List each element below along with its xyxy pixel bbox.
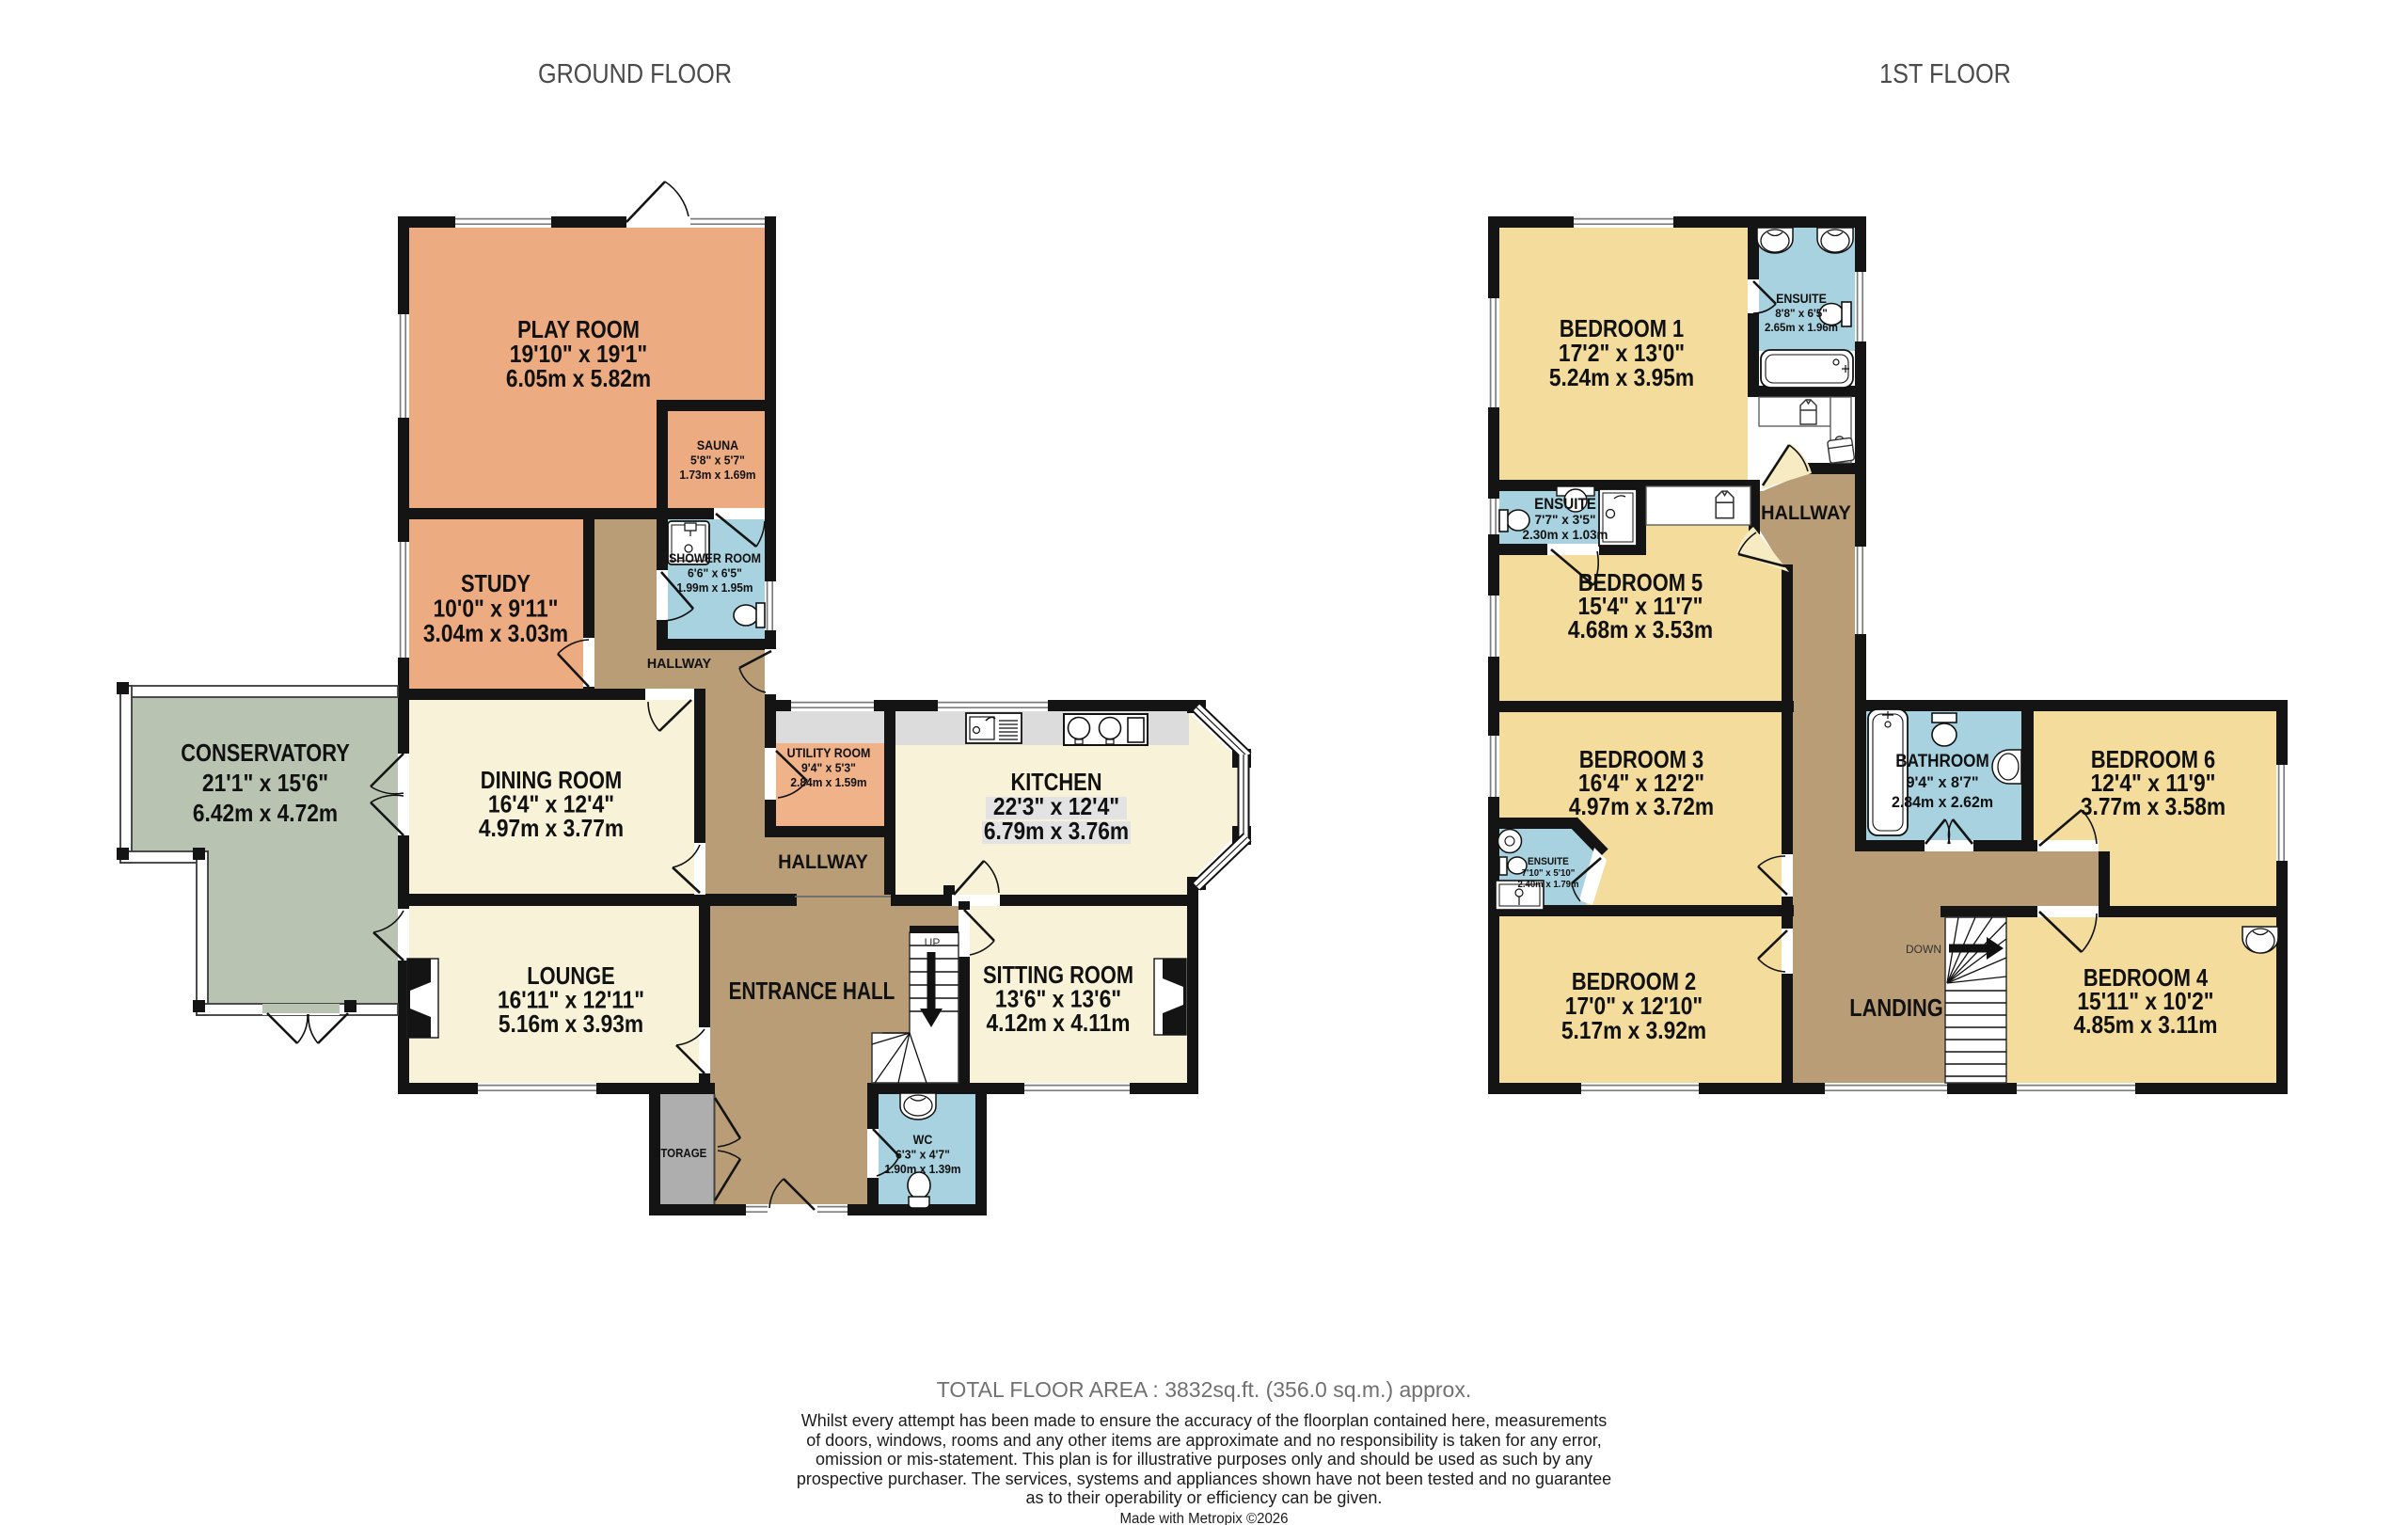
svg-text:4.12m x 4.11m: 4.12m x 4.11m: [987, 1009, 1131, 1037]
svg-text:4.97m x 3.77m: 4.97m x 3.77m: [479, 814, 624, 842]
svg-text:2.84m x 2.62m: 2.84m x 2.62m: [1892, 793, 1993, 811]
svg-text:TOTAL FLOOR AREA : 3832sq.ft.: TOTAL FLOOR AREA : 3832sq.ft. (356.0 sq.…: [937, 1377, 1471, 1402]
svg-text:STORAGE: STORAGE: [654, 1147, 707, 1160]
svg-text:3.04m x 3.03m: 3.04m x 3.03m: [423, 619, 568, 647]
svg-text:1.90m x 1.39m: 1.90m x 1.39m: [884, 1163, 960, 1176]
svg-text:6'3" x 4'7": 6'3" x 4'7": [895, 1149, 950, 1162]
svg-text:4.85m x 3.11m: 4.85m x 3.11m: [2074, 1010, 2218, 1039]
svg-text:5.16m x 3.93m: 5.16m x 3.93m: [499, 1009, 643, 1038]
svg-text:GROUND FLOOR: GROUND FLOOR: [538, 59, 732, 89]
svg-text:1.73m x 1.69m: 1.73m x 1.69m: [679, 469, 755, 482]
svg-text:9'4" x 5'3": 9'4" x 5'3": [801, 762, 856, 775]
svg-text:2.40m x 1.79m: 2.40m x 1.79m: [1518, 880, 1579, 890]
svg-text:HALLWAY: HALLWAY: [647, 656, 711, 672]
svg-text:10'0" x 9'11": 10'0" x 9'11": [433, 595, 558, 623]
svg-text:21'1" x 15'6": 21'1" x 15'6": [202, 769, 328, 797]
svg-text:8'8" x 6'5": 8'8" x 6'5": [1775, 307, 1828, 320]
svg-text:Whilst every attempt has been: Whilst every attempt has been made to en…: [801, 1411, 1607, 1430]
svg-text:6.42m x 4.72m: 6.42m x 4.72m: [193, 799, 338, 827]
svg-text:ENSUITE: ENSUITE: [1776, 292, 1827, 306]
svg-text:DOWN: DOWN: [1906, 943, 1941, 956]
svg-text:BATHROOM: BATHROOM: [1895, 752, 1988, 771]
svg-text:5'8" x 5'7": 5'8" x 5'7": [690, 454, 745, 468]
svg-text:SAUNA: SAUNA: [697, 438, 738, 453]
svg-text:5.17m x 3.92m: 5.17m x 3.92m: [1561, 1016, 1706, 1044]
svg-text:2.84m x 1.59m: 2.84m x 1.59m: [790, 776, 866, 789]
svg-text:4.97m x 3.72m: 4.97m x 3.72m: [1569, 792, 1714, 820]
svg-text:1.99m x 1.95m: 1.99m x 1.95m: [676, 581, 752, 595]
svg-text:WC: WC: [913, 1133, 933, 1147]
svg-text:2.65m x 1.96m: 2.65m x 1.96m: [1765, 321, 1838, 334]
svg-text:2.30m x 1.03m: 2.30m x 1.03m: [1523, 527, 1608, 542]
svg-text:1ST FLOOR: 1ST FLOOR: [1879, 59, 2011, 89]
svg-text:9'4" x 8'7": 9'4" x 8'7": [1906, 773, 1978, 791]
svg-text:Made with Metropix ©2026: Made with Metropix ©2026: [1119, 1511, 1288, 1525]
svg-text:ENSUITE: ENSUITE: [1534, 496, 1596, 513]
svg-text:4.68m x 3.53m: 4.68m x 3.53m: [1568, 615, 1713, 643]
svg-text:7'10" x 5'10": 7'10" x 5'10": [1522, 868, 1576, 879]
svg-text:6'6" x 6'5": 6'6" x 6'5": [688, 567, 742, 580]
svg-text:HALLWAY: HALLWAY: [778, 851, 868, 873]
svg-text:prospective purchaser. The ser: prospective purchaser. The services, sys…: [797, 1469, 1611, 1488]
svg-text:ENSUITE: ENSUITE: [1528, 856, 1569, 867]
svg-text:CONSERVATORY: CONSERVATORY: [181, 739, 350, 767]
svg-text:UP: UP: [925, 936, 941, 949]
svg-text:6.05m x 5.82m: 6.05m x 5.82m: [506, 364, 651, 392]
svg-text:LANDING: LANDING: [1849, 993, 1943, 1022]
svg-text:UTILITY ROOM: UTILITY ROOM: [787, 746, 871, 760]
svg-text:5.24m x 3.95m: 5.24m x 3.95m: [1549, 363, 1694, 391]
svg-text:STUDY: STUDY: [461, 569, 531, 597]
svg-text:ENTRANCE HALL: ENTRANCE HALL: [729, 977, 895, 1005]
svg-text:omission or mis-statement. Thi: omission or mis-statement. This plan is …: [816, 1450, 1592, 1469]
svg-text:SHOWER ROOM: SHOWER ROOM: [669, 551, 761, 565]
svg-text:of doors, windows, rooms and a: of doors, windows, rooms and any other i…: [806, 1431, 1601, 1450]
svg-text:as to their operability or eff: as to their operability or efficiency ca…: [1026, 1488, 1383, 1507]
svg-text:HALLWAY: HALLWAY: [1761, 502, 1851, 524]
svg-text:7'7" x 3'5": 7'7" x 3'5": [1535, 512, 1596, 527]
svg-text:3.77m x 3.58m: 3.77m x 3.58m: [2081, 792, 2226, 820]
svg-text:6.79m x 3.76m: 6.79m x 3.76m: [984, 817, 1129, 845]
